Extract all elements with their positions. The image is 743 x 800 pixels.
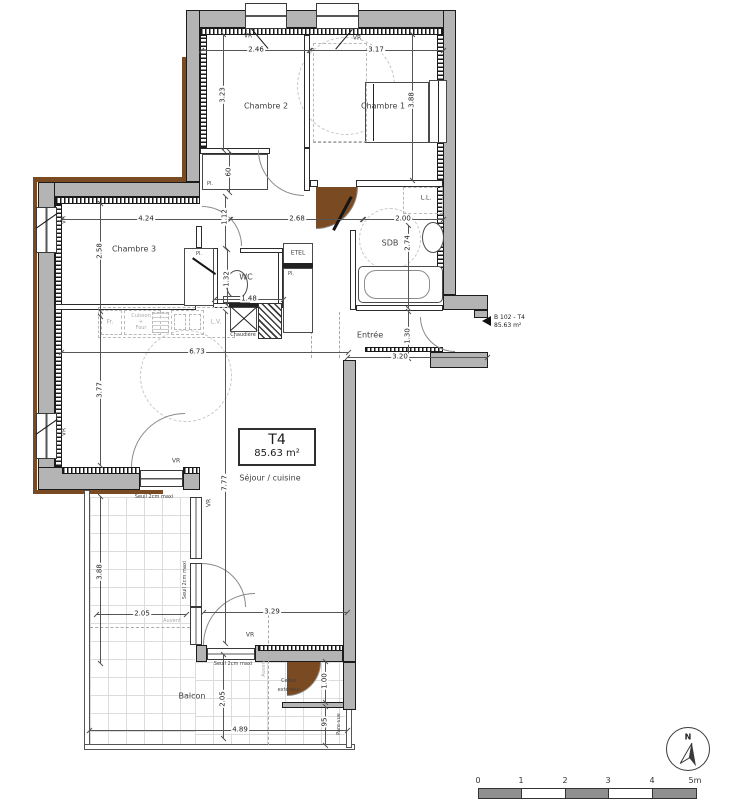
window-chambre2 xyxy=(245,3,287,29)
bathtub-inner xyxy=(364,270,430,299)
room-label-chambre1: Chambre 1 xyxy=(361,102,405,111)
fridge-label: Fr. xyxy=(107,319,114,326)
door-arc-french xyxy=(202,563,246,607)
entrance-arrow-icon xyxy=(482,316,491,326)
wall-topblock-left xyxy=(186,10,200,182)
wardrobe-line xyxy=(438,81,439,142)
room-label-cellier-2: extérieur xyxy=(278,687,301,693)
door-sejour-french xyxy=(190,563,202,607)
insulation-leftsection-bottom-a xyxy=(62,467,140,474)
scale-segment-1 xyxy=(479,789,522,798)
dim-sejour-h1: 3.77 xyxy=(97,381,104,399)
dim-chambre3-w: 4.24 xyxy=(137,216,155,223)
dim-chambre2-h: 3.23 xyxy=(220,86,227,104)
seuil-label-3: Seuil 2cm maxi xyxy=(214,661,252,667)
vr-label-2: VR xyxy=(353,35,361,42)
floor-plan: 2.46 3.17 3.23 3.88 60 4.24 2.68 2.00 2.… xyxy=(0,0,743,800)
dim-balcon-w1: 2.05 xyxy=(133,611,151,618)
vr-label-6: VR xyxy=(206,499,213,507)
dimline-balcon-w2 xyxy=(90,730,347,731)
dim-chambre2-w: 2.46 xyxy=(247,47,265,54)
vr-label-1: VR xyxy=(244,33,252,40)
dim-closet-d: 60 xyxy=(226,167,233,178)
vr-label-7: VR xyxy=(246,632,254,639)
wall-sejour-bottom-pier xyxy=(196,645,207,662)
dim-sejour-h2: 7.77 xyxy=(222,474,229,492)
dim-balcon-h1: 3.88 xyxy=(97,563,104,581)
dim-chambre1-h: 3.88 xyxy=(409,91,416,109)
chaudiere-band xyxy=(229,303,258,307)
room-label-wc: WC xyxy=(239,273,253,282)
bed-headboard-line xyxy=(373,84,374,141)
insulation-leftsection-bottom-b xyxy=(183,467,200,474)
partition-chambre1-bottom-b xyxy=(356,180,443,187)
entrance-ref: B 102 - T4 xyxy=(494,314,525,322)
dimline-chambre3-h xyxy=(100,204,101,316)
dim-sejour-bottom-w: 3.29 xyxy=(263,609,281,616)
scale-tick-5: 5m xyxy=(689,776,702,785)
vr-label-4: VR xyxy=(61,428,68,436)
dim-wc-w: 1.48 xyxy=(240,296,258,303)
pl-label-3: Pl. xyxy=(288,271,294,277)
dim-chambre3-h: 2.58 xyxy=(97,242,104,260)
dim-parevue-h: 95 xyxy=(322,717,329,728)
insulation-sejour-bottom xyxy=(258,645,343,651)
closet-etel-pl xyxy=(283,268,313,333)
wall-entree-bottom xyxy=(430,352,488,368)
pl-label-1: Pl. xyxy=(207,181,213,187)
room-label-cellier-1: Cellier xyxy=(281,678,297,684)
seuil-label-2: Seuil 2cm maxi xyxy=(182,561,188,599)
window-chambre1 xyxy=(316,3,359,29)
entrance-tag: B 102 - T4 85.63 m² xyxy=(494,314,525,330)
insulation-leftsection-top xyxy=(55,197,200,204)
balcony-rail-bottom xyxy=(84,744,355,750)
window-sejour-balcony-1 xyxy=(190,497,202,559)
vr-label-3: VR xyxy=(61,216,68,224)
dim-cellier-h: 1.00 xyxy=(322,672,329,690)
wall-sejour-right xyxy=(343,360,356,662)
scale-tick-2: 2 xyxy=(562,776,567,785)
parevue-label: Pare-vue xyxy=(336,713,342,735)
room-label-entree: Entrée xyxy=(357,331,383,340)
scale-tick-4: 4 xyxy=(649,776,654,785)
north-arrow-icon xyxy=(677,739,703,768)
entrance-area: 85.63 m² xyxy=(494,322,525,330)
dim-sejour-w: 6.73 xyxy=(188,349,206,356)
dim-hall-w: 2.68 xyxy=(288,216,306,223)
auvent-label-1: Auvent xyxy=(163,618,181,624)
partition-wc-top xyxy=(240,248,283,253)
insulation-top xyxy=(200,28,443,35)
dim-sdb-w: 2.00 xyxy=(394,216,412,223)
scale-tick-0: 0 xyxy=(475,776,480,785)
bed-chambre1 xyxy=(365,82,429,143)
seuil-label-1: Seuil 2cm maxi xyxy=(135,494,173,500)
scale-segment-3 xyxy=(566,789,609,798)
auvent-label-2: Auvent xyxy=(261,659,267,677)
dim-sdb-h: 2.74 xyxy=(405,234,412,252)
wall-cellier-right xyxy=(343,662,356,710)
room-label-balcon: Balcon xyxy=(179,692,206,701)
room-label-chambre3: Chambre 3 xyxy=(112,245,156,254)
insulation-entree-bottom xyxy=(365,347,443,352)
partition-chambre1-bottom-a xyxy=(310,180,318,187)
scale-tick-3: 3 xyxy=(605,776,610,785)
insulation-right xyxy=(437,35,444,293)
unit-label-box: T4 85.63 m² xyxy=(238,428,316,466)
dim-entree-w: 3.20 xyxy=(391,354,409,361)
dim-balcon-w2: 4.89 xyxy=(231,727,249,734)
kitchen-grill xyxy=(152,312,169,333)
dim-balcon-h2: 2.05 xyxy=(220,690,227,708)
dashed-line-auvent-v xyxy=(268,615,269,745)
scale-bar xyxy=(478,788,697,799)
kitchen-sink-basin-2 xyxy=(189,314,201,330)
unit-type: T4 xyxy=(240,432,314,448)
dimline-entree-w xyxy=(348,357,487,358)
partition-sdb-entree xyxy=(356,305,443,311)
scale-tick-1: 1 xyxy=(518,776,523,785)
furniture-zone-dashed xyxy=(313,43,367,142)
partition-sdb-left-b xyxy=(350,230,356,310)
pl-label-2: Pl. xyxy=(196,251,202,257)
room-label-sejour: Séjour / cuisine xyxy=(239,474,300,483)
vr-label-5: VR xyxy=(172,458,180,465)
turning-circle-sejour xyxy=(140,330,232,422)
kitchen-sink-basin-1 xyxy=(174,314,186,330)
dishwasher-label: L.V. xyxy=(211,319,222,326)
dim-entree-h: 1.30 xyxy=(405,327,412,345)
scale-segment-5 xyxy=(653,789,696,798)
room-label-sdb: SDB xyxy=(382,239,399,248)
balcony-rail-left xyxy=(84,490,90,748)
scale-segment-4 xyxy=(609,789,652,798)
window-sejour-balcony-2 xyxy=(190,607,202,645)
cooktop-label-3: Four xyxy=(136,325,147,331)
door-balcony-1 xyxy=(140,470,183,487)
wall-leftsection-top xyxy=(38,182,200,197)
closet-etel-band xyxy=(283,263,313,268)
duct-hatch xyxy=(258,303,282,339)
dim-chambre1-w: 3.17 xyxy=(367,47,385,54)
unit-area: 85.63 m² xyxy=(240,448,314,459)
dim-hall-h: 1.12 xyxy=(222,208,229,226)
wall-topblock-right xyxy=(443,10,456,295)
scale-segment-2 xyxy=(522,789,565,798)
room-label-etel: ETEL xyxy=(291,250,306,257)
room-label-chambre2: Chambre 2 xyxy=(244,102,288,111)
wall-entree-stub-a xyxy=(443,295,488,310)
dim-wc-h: 1.32 xyxy=(224,270,231,288)
chaudiere-label: Chaudière xyxy=(230,332,256,338)
washbasin xyxy=(422,222,444,253)
door-balcony-2 xyxy=(207,648,255,660)
washer-label: L.L. xyxy=(421,195,432,202)
insulation-topblock-left xyxy=(200,35,207,148)
wall-cellier-divider xyxy=(282,702,344,708)
dashed-line-auvent-h xyxy=(90,627,195,628)
